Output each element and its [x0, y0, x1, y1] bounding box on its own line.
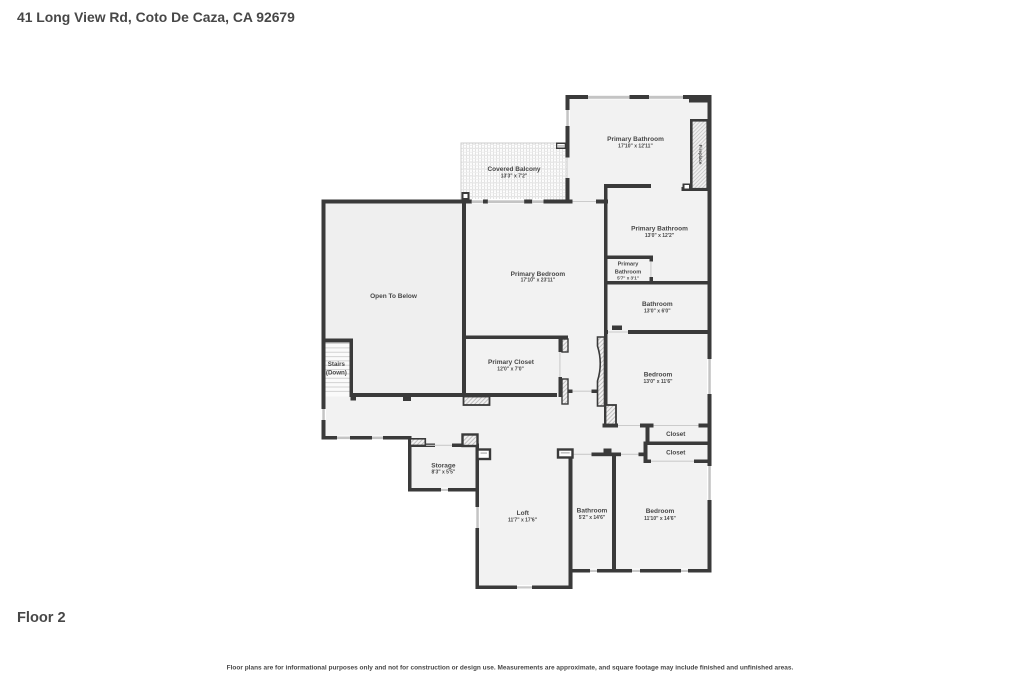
- svg-text:Floor plans are for informatio: Floor plans are for informational purpos…: [227, 665, 794, 672]
- svg-text:13'0" x 6'0": 13'0" x 6'0": [644, 309, 671, 315]
- svg-text:13'3" x 7'2": 13'3" x 7'2": [501, 174, 528, 180]
- svg-text:17'10" x 23'11": 17'10" x 23'11": [521, 278, 556, 284]
- svg-text:Primary Bathroom: Primary Bathroom: [607, 136, 664, 143]
- svg-text:12'0" x 7'0": 12'0" x 7'0": [497, 366, 524, 372]
- svg-text:Primary Bathroom: Primary Bathroom: [631, 225, 688, 232]
- svg-text:Closet: Closet: [666, 431, 686, 438]
- svg-text:5'2" x 14'6": 5'2" x 14'6": [579, 515, 606, 521]
- svg-text:41 Long View Rd, Coto De Caza,: 41 Long View Rd, Coto De Caza, CA 92679: [17, 9, 295, 25]
- svg-text:Stairs: Stairs: [328, 361, 346, 368]
- svg-text:17'10" x 12'11": 17'10" x 12'11": [618, 144, 653, 150]
- svg-text:11'10" x 14'6": 11'10" x 14'6": [644, 516, 676, 522]
- svg-text:Bedroom: Bedroom: [644, 372, 673, 379]
- svg-text:13'0" x 12'2": 13'0" x 12'2": [645, 233, 675, 239]
- svg-text:Primary Closet: Primary Closet: [488, 359, 535, 366]
- svg-text:13'0" x 11'6": 13'0" x 11'6": [643, 379, 673, 385]
- svg-text:Closet: Closet: [666, 449, 686, 456]
- svg-text:Floor 2: Floor 2: [17, 610, 66, 626]
- svg-text:Primary: Primary: [618, 262, 640, 268]
- svg-text:Storage: Storage: [431, 462, 456, 469]
- svg-text:Bathroom: Bathroom: [642, 301, 673, 308]
- svg-text:Bedroom: Bedroom: [646, 508, 675, 515]
- svg-text:Loft: Loft: [517, 510, 530, 517]
- svg-text:Open To Below: Open To Below: [370, 293, 418, 300]
- svg-text:Bathroom: Bathroom: [615, 269, 641, 275]
- svg-text:Fireplace: Fireplace: [698, 145, 703, 165]
- svg-text:Covered Balcony: Covered Balcony: [487, 166, 540, 173]
- svg-text:Bathroom: Bathroom: [577, 507, 608, 514]
- svg-text:(Down): (Down): [326, 369, 347, 376]
- svg-text:11'7" x 17'6": 11'7" x 17'6": [508, 518, 538, 524]
- svg-text:5'7" x 3'1": 5'7" x 3'1": [617, 276, 639, 281]
- svg-text:8'3" x 5'5": 8'3" x 5'5": [431, 470, 455, 476]
